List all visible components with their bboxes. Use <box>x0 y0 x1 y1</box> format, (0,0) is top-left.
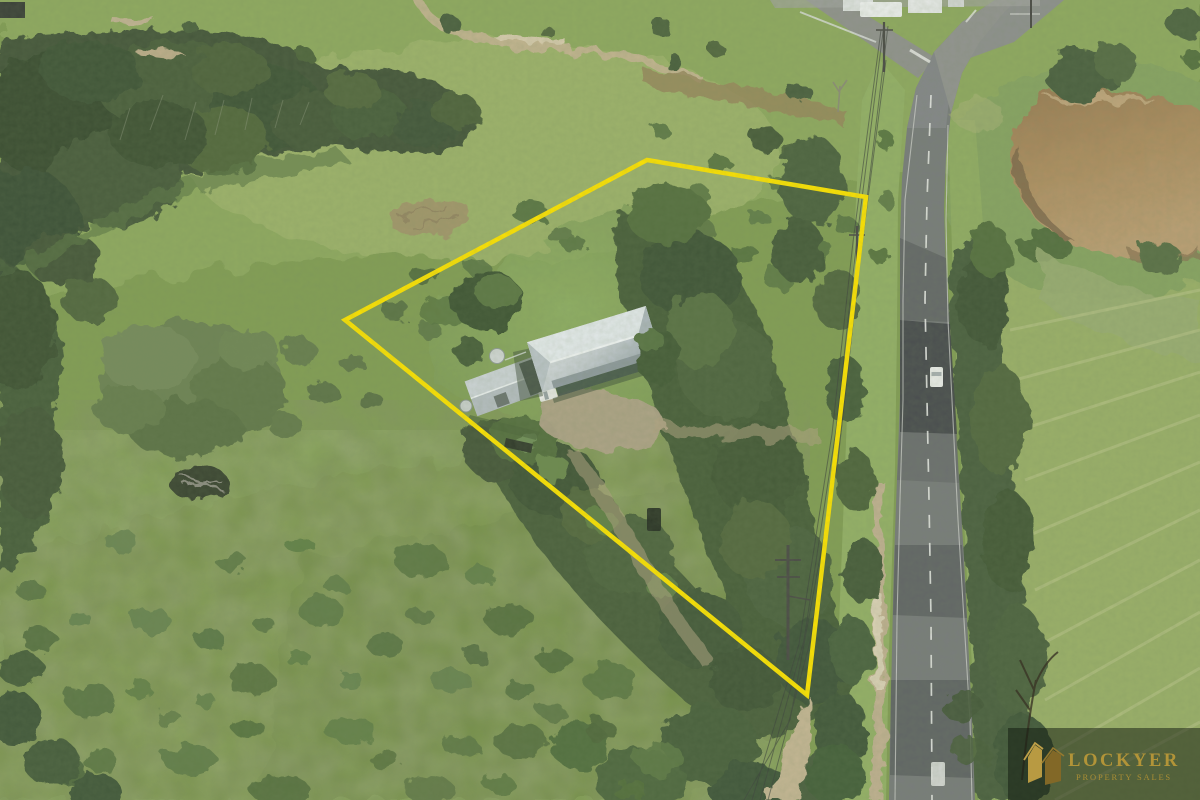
svg-text:PROPERTY SALES: PROPERTY SALES <box>1076 772 1172 782</box>
svg-text:LOCKYER: LOCKYER <box>1068 751 1180 771</box>
